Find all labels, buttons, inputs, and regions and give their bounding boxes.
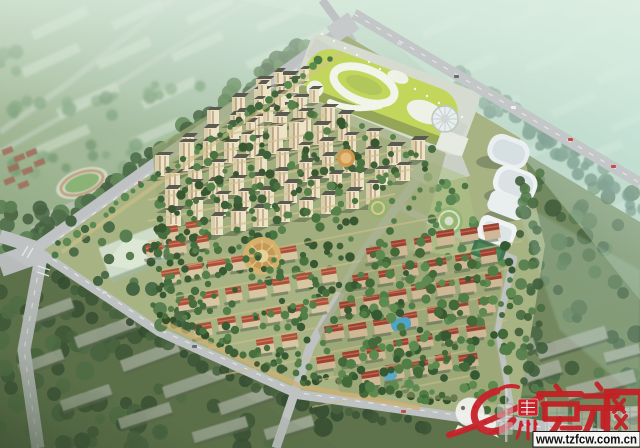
svg-text:www.tzfcw.com.cn: www.tzfcw.com.cn: [535, 433, 637, 447]
